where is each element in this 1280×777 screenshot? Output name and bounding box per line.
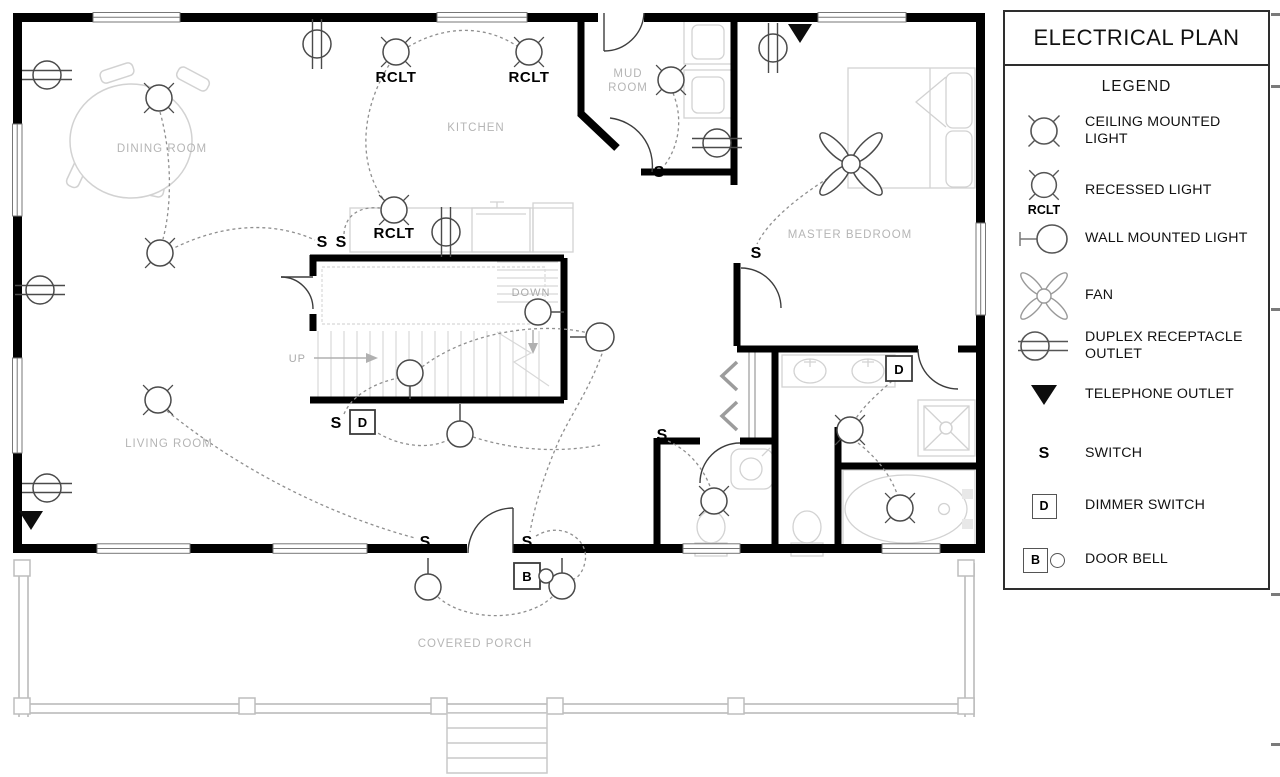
dining-table <box>65 62 211 198</box>
legend-item-dimmer-switch: D DIMMER SWITCH <box>1015 483 1260 529</box>
dimmer-switch-icon: D <box>1015 494 1073 519</box>
symbols-layer: D D B <box>15 19 915 600</box>
ceiling-light-icon <box>144 83 174 113</box>
legend-item-fan: FAN <box>1015 273 1260 319</box>
switch-letter: S <box>751 245 762 262</box>
switch-letter: S <box>331 415 342 432</box>
receptacle-icon <box>22 474 72 502</box>
room-label-master: MASTER BEDROOM <box>788 229 913 241</box>
dimmer-switch-icon: D <box>350 410 375 434</box>
closet <box>722 350 755 440</box>
switch-letter: S <box>336 234 347 251</box>
legend-item-duplex-receptacle: DUPLEX RECEPTACLE OUTLET <box>1015 323 1260 369</box>
edge-tick <box>1271 308 1280 311</box>
legend-label: DUPLEX RECEPTACLE OUTLET <box>1085 329 1260 364</box>
legend-item-switch: S SWITCH <box>1015 431 1260 477</box>
legend-item-wall-mounted-light: WALL MOUNTED LIGHT <box>1015 216 1260 262</box>
switch-letter: S <box>317 234 328 251</box>
room-label-mud-1: MUD <box>613 68 642 80</box>
door-bell-icon: B <box>514 563 553 589</box>
stairs-up-label: UP <box>289 353 306 365</box>
ceiling-light-icon <box>145 238 175 268</box>
master-bath-door <box>918 349 958 389</box>
recessed-light-icon <box>379 195 409 225</box>
window <box>97 544 190 554</box>
legend-item-door-bell: B DOOR BELL <box>1015 537 1260 583</box>
switch-icon: S <box>1015 445 1073 463</box>
legend-label: DIMMER SWITCH <box>1085 497 1205 514</box>
stairs-down-label: DOWN <box>512 287 551 299</box>
fan-icon <box>1015 270 1073 322</box>
edge-tick <box>1271 743 1280 746</box>
room-label-porch: COVERED PORCH <box>418 638 533 650</box>
powder-room-door <box>700 443 740 483</box>
dimmer-letter: D <box>358 415 367 430</box>
porch-steps <box>447 713 547 773</box>
washer-dryer <box>684 18 732 118</box>
window <box>882 544 940 554</box>
rclt-label: RCLT <box>376 69 417 86</box>
dimmer-letter: D <box>894 362 903 377</box>
window <box>93 13 180 23</box>
wall-mounted-light-icon <box>1015 221 1073 257</box>
wall-light-icon <box>397 360 423 399</box>
room-label-living: LIVING ROOM <box>125 438 213 450</box>
dimmer-switch-icon: D <box>886 356 912 381</box>
ceiling-light-icon <box>143 385 173 415</box>
legend-item-telephone-outlet: TELEPHONE OUTLET <box>1015 372 1260 418</box>
switch-letter: S <box>654 164 665 181</box>
legend-label: TELEPHONE OUTLET <box>1085 386 1234 403</box>
porch-railing <box>14 560 975 773</box>
ceiling-light-icon <box>699 486 729 516</box>
page-title: ELECTRICAL PLAN <box>1005 12 1268 66</box>
rclt-tag: RCLT <box>1028 203 1060 217</box>
recessed-light-icon: RCLT <box>1015 165 1073 217</box>
receptacle-icon <box>15 276 65 304</box>
dimmer-letter: D <box>1032 494 1057 519</box>
legend-label: SWITCH <box>1085 445 1142 462</box>
room-label-kitchen: KITCHEN <box>447 122 504 134</box>
window <box>273 544 367 554</box>
edge-tick <box>1271 13 1280 16</box>
ceiling-light-icon <box>656 65 686 95</box>
switch-letter: S <box>657 427 668 444</box>
receptacle-icon <box>22 61 72 89</box>
edge-tick <box>1271 85 1280 88</box>
wall-light-icon <box>570 323 614 351</box>
window <box>13 358 23 453</box>
receptacle-icon <box>303 19 331 69</box>
master-bedroom-door <box>741 268 781 308</box>
window <box>437 13 527 23</box>
window <box>818 13 906 23</box>
rclt-label: RCLT <box>509 69 550 86</box>
doorbell-circle <box>1050 553 1065 568</box>
legend-label: FAN <box>1085 287 1113 304</box>
staircase <box>314 262 558 397</box>
receptacle-icon <box>759 23 787 73</box>
recessed-light-icon <box>381 37 411 67</box>
legend-panel: ELECTRICAL PLAN LEGEND CEILING MOUNTED L… <box>1003 10 1270 590</box>
wall-light-icon <box>525 299 564 325</box>
master-bath-fixtures <box>782 355 975 556</box>
legend-item-ceiling-mounted-light: CEILING MOUNTED LIGHT <box>1015 108 1260 154</box>
bed <box>848 68 975 188</box>
legend-label: DOOR BELL <box>1085 551 1168 568</box>
recessed-light-icon <box>514 37 544 67</box>
switch-letter: S <box>420 534 431 551</box>
rclt-label: RCLT <box>374 225 415 242</box>
ceiling-light-icon <box>885 493 915 523</box>
switch-letter: S <box>522 534 533 551</box>
telephone-outlet-icon <box>1015 383 1073 407</box>
room-label-mud-2: ROOM <box>608 82 648 94</box>
switch-letter: S <box>1039 445 1050 463</box>
telephone-outlet-icon <box>788 24 812 43</box>
room-label-dining: DINING ROOM <box>117 143 207 155</box>
window <box>13 124 23 216</box>
floor-plan-drawing: D D B DINING ROOM KITCHEN MUD ROOM MASTE… <box>0 0 1000 777</box>
wall-light-icon <box>415 558 441 600</box>
legend-item-recessed-light: RCLT RECESSED LIGHT <box>1015 168 1260 214</box>
doorbell-letter: B <box>522 569 531 584</box>
window <box>976 223 986 315</box>
legend-label: WALL MOUNTED LIGHT <box>1085 230 1248 247</box>
telephone-outlet-icon <box>19 511 43 530</box>
edge-tick <box>1271 593 1280 596</box>
legend-heading: LEGEND <box>1005 78 1268 96</box>
wall-light-icon <box>447 404 473 447</box>
duplex-receptacle-outlet-icon <box>1015 327 1073 365</box>
wiring-layer <box>160 30 898 615</box>
legend-label: CEILING MOUNTED LIGHT <box>1085 114 1260 149</box>
receptacle-icon <box>432 207 460 257</box>
door-bell-icon: B <box>1015 548 1073 573</box>
ceiling-light-icon <box>835 415 865 445</box>
doors-layer <box>281 13 958 553</box>
doorbell-letter: B <box>1023 548 1048 573</box>
window <box>683 544 740 554</box>
legend-label: RECESSED LIGHT <box>1085 182 1212 199</box>
ceiling-mounted-light-icon <box>1015 108 1073 154</box>
electrical-plan-page: D D B DINING ROOM KITCHEN MUD ROOM MASTE… <box>0 0 1280 777</box>
